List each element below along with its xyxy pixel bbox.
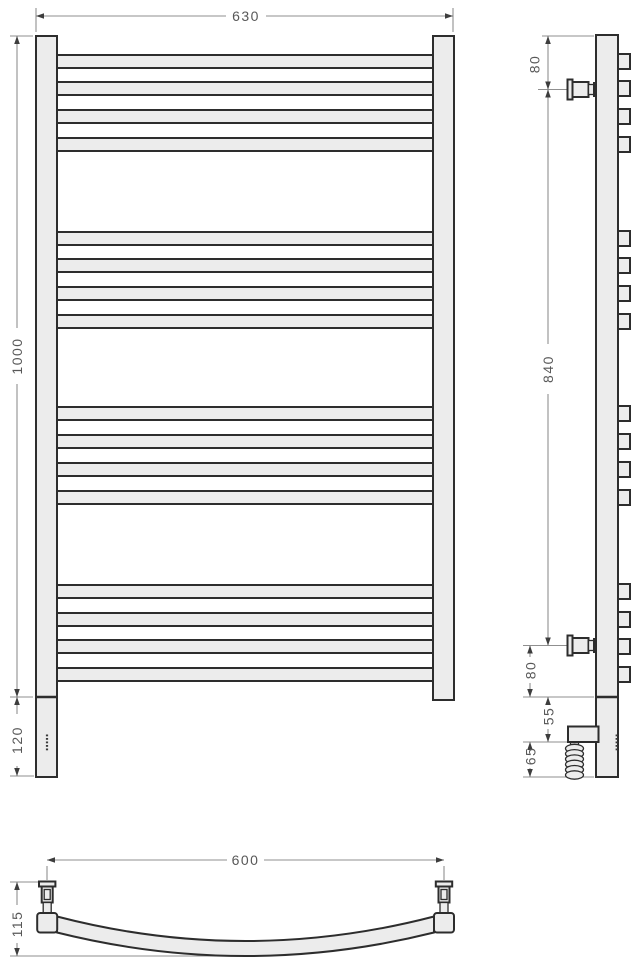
rung-stub [618, 612, 630, 627]
towel-rung [57, 585, 433, 598]
towel-rung [57, 55, 433, 68]
towel-rung [57, 110, 433, 123]
corner-block [37, 913, 57, 933]
display-dot [46, 735, 48, 737]
rung-stub [618, 81, 630, 96]
display-dot [616, 735, 618, 737]
side-element-offset-label: 55 [541, 707, 557, 726]
corner-block [434, 913, 454, 933]
drawing-page: 630 1000 120 [0, 0, 640, 970]
front-width-label: 630 [232, 8, 260, 24]
front-height-label: 1000 [9, 337, 25, 374]
dimension-side-top-offset: 80 [527, 36, 551, 90]
bottom-depth-label: 115 [9, 911, 25, 938]
valve-neck [440, 903, 448, 914]
left-collector-post [36, 36, 57, 777]
rung-stub [618, 667, 630, 682]
rung-stub [618, 231, 630, 246]
display-dot [46, 749, 48, 751]
rung-stub [618, 490, 630, 505]
technical-drawing: 630 1000 120 [0, 0, 640, 970]
dimension-front-height: 1000 [9, 36, 33, 697]
display-dot [616, 749, 618, 751]
display-dot [616, 738, 618, 740]
rung-stub [618, 462, 630, 477]
side-bottom-offset-label: 80 [523, 661, 539, 680]
rung-stub [618, 137, 630, 152]
towel-rung [57, 407, 433, 420]
dimension-bottom-axle-width: 600 [47, 852, 444, 880]
rung-stub [618, 109, 630, 124]
towel-rung [57, 640, 433, 653]
side-top-offset-label: 80 [527, 55, 543, 74]
valve-stem [44, 890, 50, 900]
front-bottom-ext-label: 120 [9, 726, 25, 754]
side-collector-post [596, 35, 618, 777]
bracket-body [573, 638, 589, 653]
towel-rung [57, 315, 433, 328]
towel-rung [57, 613, 433, 626]
side-element-to-end-label: 65 [523, 747, 539, 766]
rung-stub [618, 434, 630, 449]
display-dot [616, 742, 618, 744]
dimension-side-element-to-end: 65 [523, 742, 539, 777]
side-rung-stubs [618, 54, 630, 682]
valve-stem [441, 890, 447, 900]
towel-rung [57, 668, 433, 681]
front-view: 630 1000 120 [9, 8, 454, 777]
bottom-valves [37, 882, 454, 933]
coil-loop [566, 771, 584, 779]
bottom-view: 600 115 [9, 852, 454, 956]
rung-stub [618, 314, 630, 329]
rung-stub [618, 584, 630, 599]
heating-element [568, 727, 599, 743]
right-collector-post [433, 36, 454, 700]
rung-stub [618, 639, 630, 654]
display-dot [46, 742, 48, 744]
valve-neck [43, 903, 51, 914]
rung-stub [618, 286, 630, 301]
display-dot [46, 738, 48, 740]
bottom-axle-width-label: 600 [232, 852, 260, 868]
dimension-side-bracket-span: 840 [540, 90, 556, 646]
side-view: 80 840 80 55 [523, 35, 631, 779]
towel-rung [57, 491, 433, 504]
rung-stub [618, 258, 630, 273]
towel-rung [57, 138, 433, 151]
rung-stub [618, 54, 630, 69]
dimension-front-bottom-ext: 120 [9, 697, 34, 776]
towel-rung [57, 82, 433, 95]
display-dot [46, 745, 48, 747]
side-bracket-span-label: 840 [540, 355, 556, 383]
display-dot [616, 745, 618, 747]
bracket-body [573, 82, 589, 97]
towel-rung [57, 435, 433, 448]
towel-rung [57, 259, 433, 272]
power-cord-coil [566, 744, 584, 779]
dimension-front-width: 630 [36, 8, 453, 32]
curved-rung [57, 917, 434, 957]
towel-rung [57, 463, 433, 476]
wall-brackets [568, 80, 598, 656]
towel-rung [57, 232, 433, 245]
towel-rung [57, 287, 433, 300]
front-rungs [57, 55, 433, 681]
dimension-side-bottom-offset: 80 [523, 646, 539, 698]
rung-stub [618, 406, 630, 421]
dimension-side-element-offset: 55 [541, 697, 557, 742]
